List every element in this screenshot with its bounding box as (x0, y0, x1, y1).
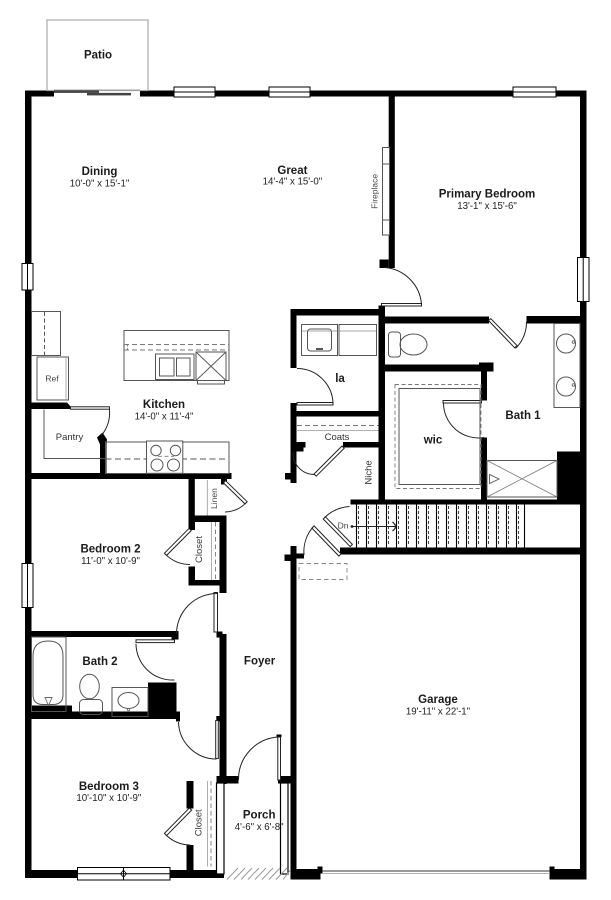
svg-text:Dining: Dining (82, 166, 118, 178)
svg-text:19'-11" x 22'-1": 19'-11" x 22'-1" (406, 707, 471, 718)
svg-text:11'-0" x 10'-9": 11'-0" x 10'-9" (81, 556, 140, 567)
svg-text:Linen: Linen (209, 488, 219, 509)
svg-text:13'-1" x 15'-6": 13'-1" x 15'-6" (457, 201, 517, 212)
svg-text:Bedroom 3: Bedroom 3 (79, 781, 139, 793)
svg-text:14'-4" x 15'-0": 14'-4" x 15'-0" (263, 177, 323, 188)
svg-text:Bedroom 2: Bedroom 2 (80, 544, 140, 556)
svg-text:wic: wic (423, 435, 443, 447)
svg-text:10'-10" x 10'-9": 10'-10" x 10'-9" (76, 793, 142, 804)
svg-text:Foyer: Foyer (244, 656, 276, 668)
svg-text:Niche: Niche (364, 460, 375, 484)
svg-text:Kitchen: Kitchen (143, 399, 185, 411)
svg-text:la: la (335, 373, 345, 385)
svg-text:Closet: Closet (194, 809, 205, 836)
svg-text:Primary Bedroom: Primary Bedroom (439, 189, 536, 201)
svg-text:Great: Great (277, 165, 307, 177)
svg-text:Bath 1: Bath 1 (505, 410, 541, 422)
svg-text:Ref: Ref (45, 374, 59, 384)
svg-text:Dn: Dn (338, 521, 349, 531)
svg-text:Porch: Porch (243, 810, 276, 822)
svg-text:4'-6" x 6'-8": 4'-6" x 6'-8" (235, 822, 284, 833)
svg-text:14'-0" x 11'-4": 14'-0" x 11'-4" (135, 412, 194, 423)
svg-text:Pantry: Pantry (56, 432, 84, 443)
svg-text:Coats: Coats (325, 432, 350, 443)
svg-text:Patio: Patio (84, 50, 112, 62)
svg-text:Garage: Garage (418, 694, 458, 706)
svg-text:Bath 2: Bath 2 (82, 656, 117, 668)
svg-text:10'-0" x 15'-1": 10'-0" x 15'-1" (70, 179, 130, 190)
svg-text:Fireplace: Fireplace (370, 174, 380, 209)
svg-text:Closet: Closet (194, 536, 205, 563)
